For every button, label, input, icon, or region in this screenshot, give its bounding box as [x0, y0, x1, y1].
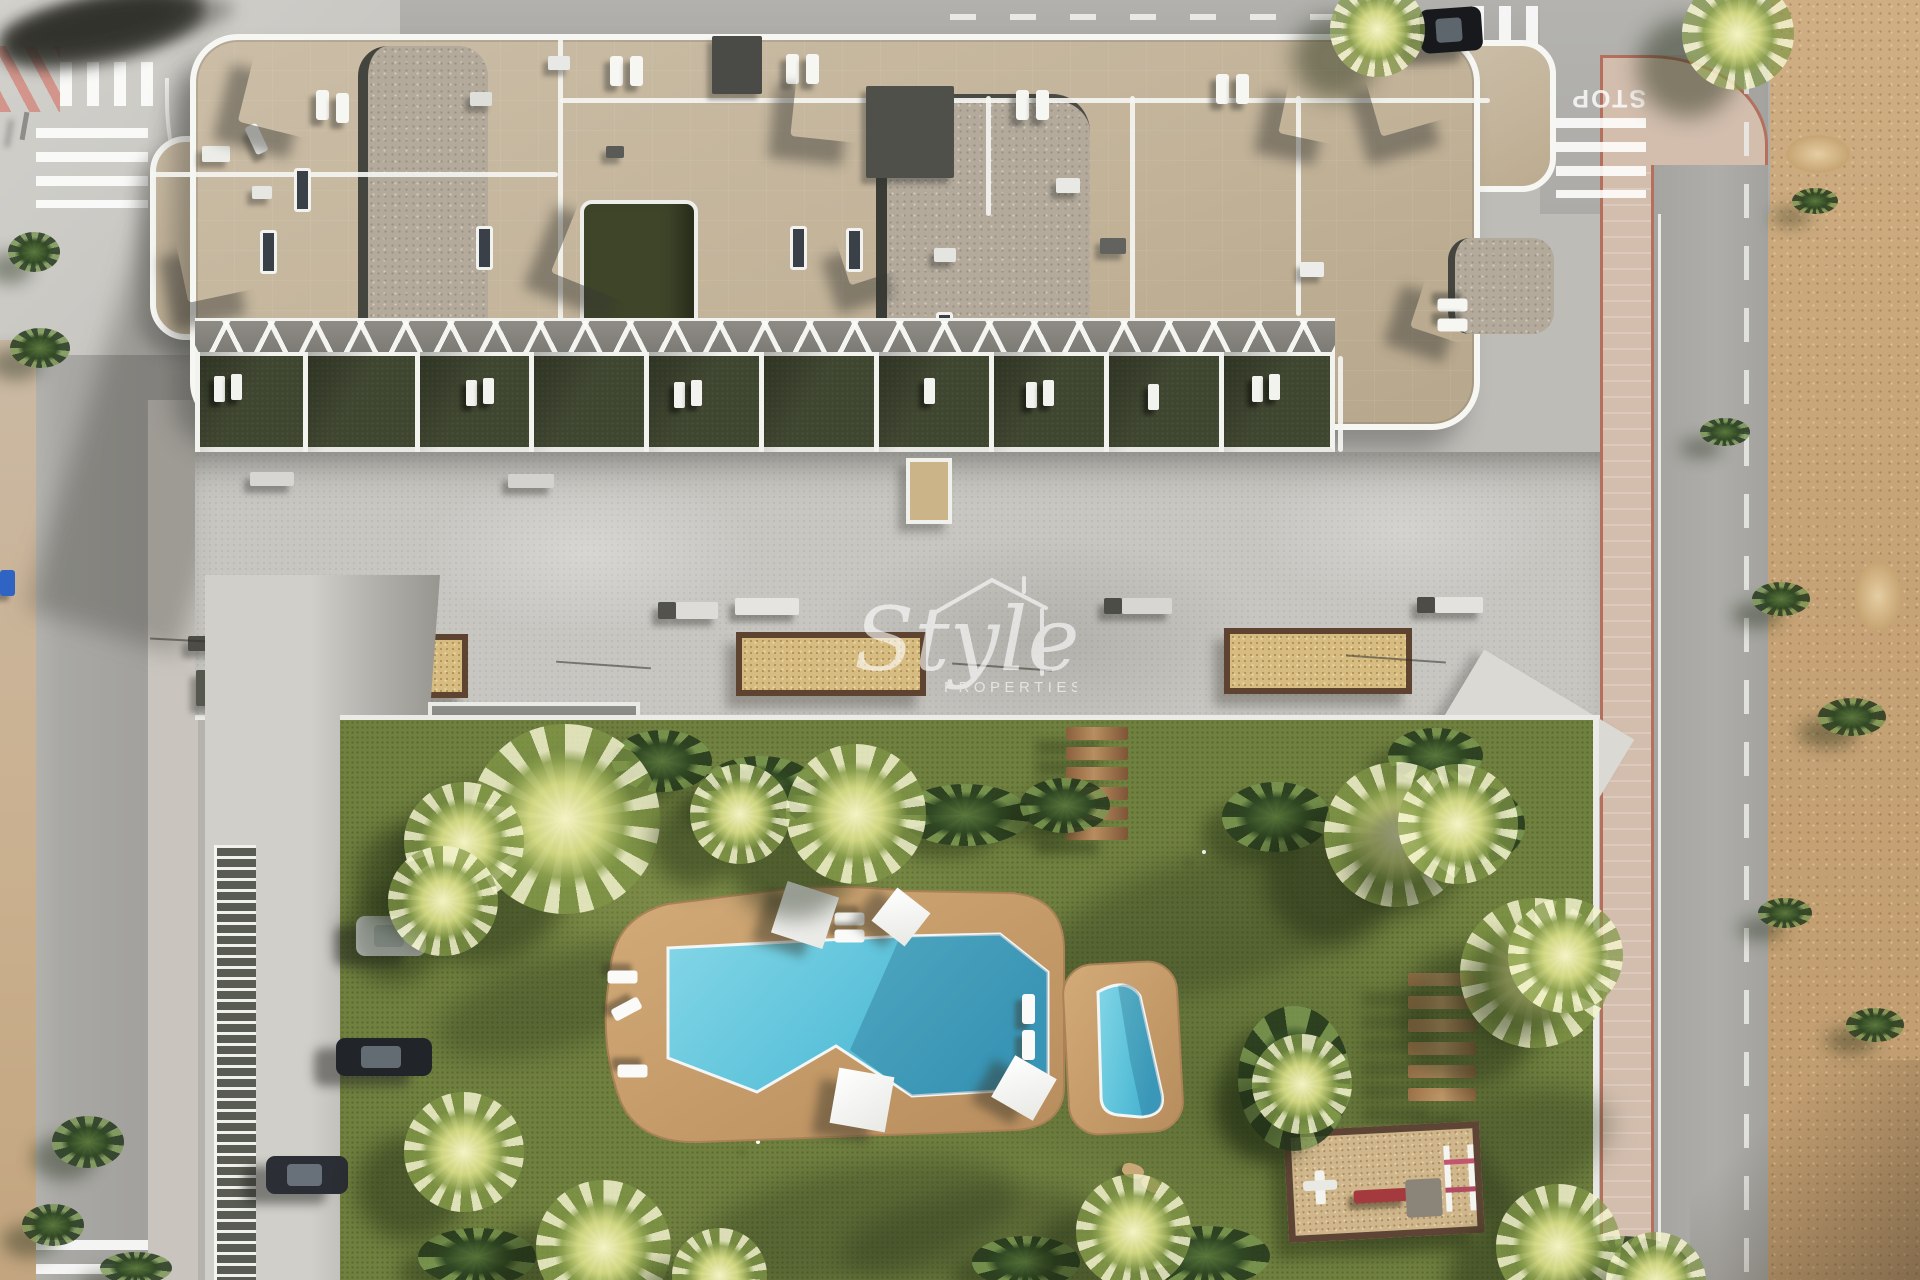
car-windshield: [361, 1046, 401, 1067]
skylight: [294, 168, 311, 212]
roof-wall: [1338, 356, 1343, 452]
wooden-sun-bench: [1408, 1042, 1476, 1055]
gym-bench: [1353, 1188, 1408, 1204]
terrace-cell: [529, 352, 644, 452]
wooden-step: [1066, 727, 1128, 740]
skylight: [790, 226, 807, 270]
left-sand-verge: [0, 340, 36, 1280]
pool-lounger: [1022, 994, 1035, 1024]
car-windshield: [287, 1164, 321, 1185]
sun-lounger: [1252, 376, 1263, 402]
bush: [10, 328, 70, 368]
terrace-cell: [303, 352, 415, 452]
bush: [1846, 1008, 1904, 1042]
terrace-cell: [195, 352, 303, 452]
roof-unit: [470, 92, 492, 106]
stop-road-marking: STOP: [1576, 66, 1646, 112]
bench: [1435, 597, 1483, 613]
sun-lounger: [630, 56, 643, 86]
pool-lounger: [608, 971, 638, 984]
rubble-pile: [1846, 548, 1910, 644]
bench: [1104, 598, 1122, 614]
terrace-cell: [1219, 352, 1335, 452]
bench: [658, 602, 676, 619]
sun-lounger: [1036, 90, 1049, 120]
gym-mat: [1405, 1178, 1443, 1218]
bush: [1792, 188, 1838, 214]
sun-lounger: [924, 378, 935, 404]
bush: [1758, 898, 1812, 928]
pool-lounger: [835, 930, 865, 943]
bench: [250, 472, 294, 486]
roof-unit: [1300, 262, 1324, 277]
bush: [1818, 698, 1886, 736]
bush: [1020, 778, 1110, 833]
skylight: [260, 230, 277, 274]
car: [336, 1038, 432, 1076]
sun-lounger: [610, 56, 623, 86]
bush: [1700, 418, 1750, 446]
roof-unit: [866, 86, 954, 178]
palm-tree: [404, 1092, 524, 1212]
roof-unit: [1100, 238, 1126, 254]
sun-lounger: [674, 382, 685, 408]
aerial-render: STOP Style PROPERTIES: [0, 0, 1920, 1280]
sun-lounger: [466, 380, 477, 406]
road-edge-line: [1658, 214, 1661, 1280]
carport-slats: [214, 845, 256, 1280]
wooden-sun-bench: [1408, 1088, 1476, 1101]
sun-lounger: [483, 378, 494, 404]
crosswalk: [1556, 118, 1646, 198]
brand-watermark: Style PROPERTIES: [852, 570, 1077, 710]
palm-tree: [690, 764, 790, 864]
bench: [1122, 598, 1172, 614]
watermark-script: Style: [854, 588, 1077, 691]
shade-sail: [790, 62, 871, 143]
sun-lounger: [214, 376, 225, 402]
roof-unit: [548, 56, 570, 70]
blue-bin: [0, 570, 15, 596]
sand-shadow: [1690, 1060, 1920, 1280]
gym-equipment: [1303, 1179, 1337, 1191]
wooden-sun-bench: [1408, 1065, 1476, 1078]
watermark-sub: PROPERTIES: [944, 679, 1077, 696]
roof-unit: [934, 248, 956, 262]
sun-lounger: [1016, 90, 1029, 120]
plaza-planter-box: [906, 458, 952, 524]
roof-unit: [606, 146, 624, 158]
palm-tree: [786, 744, 926, 884]
terrace-cell: [1104, 352, 1219, 452]
pool-lounger: [835, 913, 865, 926]
roof-unit: [712, 36, 762, 94]
wooden-sun-bench: [1408, 1019, 1476, 1032]
bush: [100, 1252, 172, 1280]
roof-unit: [1056, 178, 1080, 193]
garden-light: [1202, 850, 1206, 854]
crosswalk: [60, 62, 164, 106]
pergola-truss: [195, 318, 1335, 356]
pullup-frame: [1467, 1144, 1476, 1210]
bush: [1752, 582, 1810, 616]
palm-tree: [1252, 1034, 1352, 1134]
palm-tree: [1398, 764, 1518, 884]
parasol: [830, 1068, 895, 1133]
palm-tree: [388, 846, 498, 956]
sun-lounger: [1026, 382, 1037, 408]
sun-lounger: [231, 374, 242, 400]
bush: [8, 232, 60, 272]
terrace-cell: [759, 352, 874, 452]
crosswalk: [36, 128, 148, 208]
pullup-frame: [1443, 1146, 1452, 1212]
shade-sail: [173, 215, 261, 303]
sun-lounger: [1236, 74, 1249, 104]
sand-planter: [1224, 628, 1412, 694]
roof-unit: [202, 146, 230, 162]
bush: [22, 1204, 84, 1246]
roof-wall: [558, 38, 563, 338]
roof-unit: [252, 186, 272, 199]
sun-lounger: [336, 93, 349, 123]
bush: [52, 1116, 124, 1168]
bench: [735, 598, 799, 615]
bench: [1417, 597, 1435, 613]
palm-tree: [1076, 1174, 1191, 1280]
roof-wall: [986, 96, 991, 216]
sun-lounger: [1269, 374, 1280, 400]
pool-lounger: [1022, 1030, 1035, 1060]
shade-sail: [1278, 72, 1352, 146]
car-windshield: [1435, 17, 1463, 43]
bench: [676, 602, 718, 619]
rubble-pile: [1774, 128, 1862, 180]
sun-lounger: [1043, 380, 1054, 406]
palm-tree: [1508, 898, 1623, 1013]
skylight: [476, 226, 493, 270]
bush: [418, 1228, 536, 1280]
roof-wall: [150, 172, 558, 177]
bench: [508, 474, 554, 488]
car: [266, 1156, 348, 1194]
wooden-step: [1066, 747, 1128, 760]
sun-lounger: [691, 380, 702, 406]
sun-lounger: [1148, 384, 1159, 410]
bush: [1222, 782, 1330, 852]
car: [1419, 6, 1484, 54]
sun-lounger: [1216, 74, 1229, 104]
pool-lounger: [618, 1065, 648, 1078]
bush: [972, 1236, 1080, 1280]
